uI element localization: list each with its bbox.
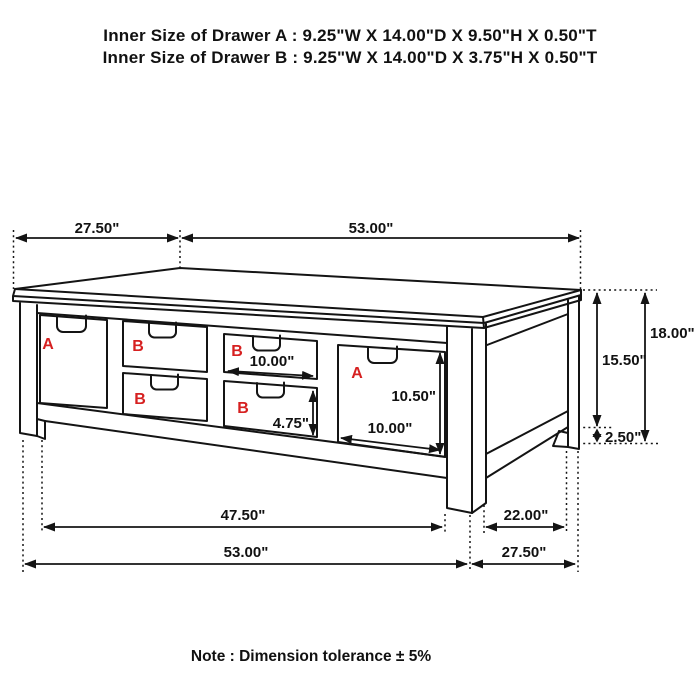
drawer-label-b-upper-left: B xyxy=(132,338,144,355)
tolerance-note: Note : Dimension tolerance ± 5% xyxy=(191,648,431,666)
drawer-label-a-right: A xyxy=(351,365,363,382)
drawer-label-b-lower-right: B xyxy=(237,400,249,417)
dim-label-top-depth: 27.50" xyxy=(75,220,120,237)
front-left-leg xyxy=(20,303,45,439)
dimension-sheet: Inner Size of Drawer A : 9.25"W X 14.00"… xyxy=(0,0,700,700)
table-dimension-diagram: 27.50" 53.00" 18.00" 15.50" 2.50" 10.00"… xyxy=(0,0,700,700)
drawer-label-a-left: A xyxy=(42,336,54,353)
drawer-label-b-lower-left: B xyxy=(134,391,146,408)
dim-label-bottom-width: 53.00" xyxy=(224,544,269,561)
dim-arrow-foot-height xyxy=(593,429,602,443)
dim-label-foot-height: 2.50" xyxy=(605,429,641,446)
dim-label-drawer-a-width: 10.00" xyxy=(368,420,413,437)
drawer-a-left xyxy=(40,315,107,408)
front-face-rails xyxy=(37,313,447,478)
extension-lines xyxy=(14,230,659,572)
dimension-arrows xyxy=(16,238,645,564)
front-right-leg xyxy=(447,324,486,513)
table-drawing xyxy=(13,268,581,513)
dim-label-overall-height: 18.00" xyxy=(650,325,695,342)
drawer-letter-labels: A B B B B A xyxy=(42,336,363,417)
dim-label-drawer-b-height: 4.75" xyxy=(273,415,309,432)
dim-label-drawer-a-height: 10.50" xyxy=(391,388,436,405)
dim-label-apron-height: 15.50" xyxy=(602,352,647,369)
dim-label-bottom-depth: 27.50" xyxy=(502,544,547,561)
dim-label-drawer-b-width: 10.00" xyxy=(250,353,295,370)
dim-label-front-leg-span: 47.50" xyxy=(221,507,266,524)
side-panel xyxy=(486,314,568,478)
drawer-label-b-upper-right: B xyxy=(231,343,243,360)
dim-label-top-width: 53.00" xyxy=(349,220,394,237)
dim-label-side-leg-span: 22.00" xyxy=(504,507,549,524)
